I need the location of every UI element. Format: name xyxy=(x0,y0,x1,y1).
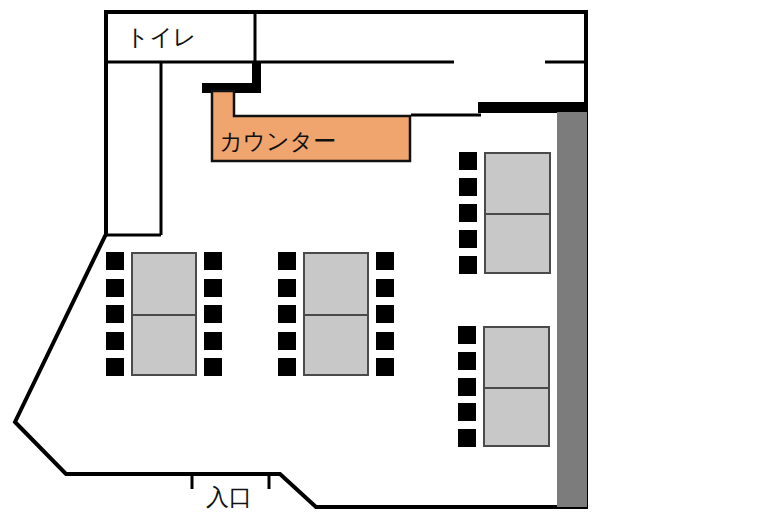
table-divider xyxy=(304,314,368,316)
chair xyxy=(459,178,477,196)
chair xyxy=(106,252,124,270)
chair xyxy=(204,305,222,323)
table-divider xyxy=(484,387,549,389)
chair xyxy=(376,305,394,323)
table-divider xyxy=(485,213,550,215)
table-2 xyxy=(303,252,369,376)
chair xyxy=(106,358,124,376)
chair xyxy=(278,279,296,297)
chair xyxy=(459,152,477,170)
table-3 xyxy=(484,152,551,274)
chair xyxy=(106,305,124,323)
chair xyxy=(459,256,477,274)
chair xyxy=(376,252,394,270)
chair xyxy=(106,279,124,297)
chair xyxy=(204,358,222,376)
chair xyxy=(204,279,222,297)
chair xyxy=(376,332,394,350)
chair xyxy=(459,230,477,248)
chair xyxy=(278,252,296,270)
chair xyxy=(278,332,296,350)
chair xyxy=(458,352,476,370)
chair xyxy=(458,429,476,447)
chair xyxy=(278,305,296,323)
chair xyxy=(458,403,476,421)
table-divider xyxy=(132,314,196,316)
chair xyxy=(376,358,394,376)
chair xyxy=(204,252,222,270)
furniture-layer xyxy=(0,0,780,519)
chair xyxy=(204,332,222,350)
chair xyxy=(376,279,394,297)
floor-plan: トイレ カウンター 入口 xyxy=(0,0,780,519)
chair xyxy=(278,358,296,376)
chair xyxy=(458,326,476,344)
table-4 xyxy=(483,326,550,447)
chair xyxy=(459,204,477,222)
chair xyxy=(106,332,124,350)
table-1 xyxy=(131,252,197,376)
chair xyxy=(458,378,476,396)
